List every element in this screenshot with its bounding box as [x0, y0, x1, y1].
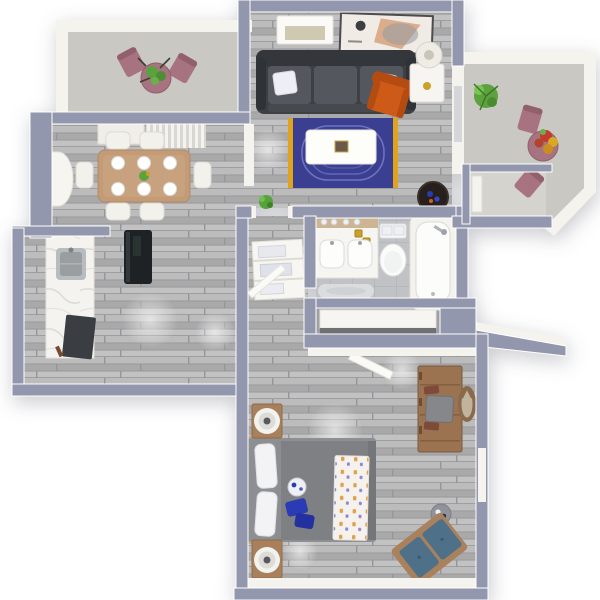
small-green-plant: [259, 195, 273, 209]
bed: [246, 436, 376, 544]
patio-left-parapet-west: [56, 20, 68, 114]
bedroom-south-wall-face: [240, 578, 478, 588]
bath-mat-oval: [326, 287, 366, 295]
dining-north-wall: [30, 112, 250, 124]
dining-chair: [106, 203, 130, 220]
blue-pillow: [294, 513, 315, 530]
pillow: [254, 491, 277, 536]
tank-towel: [394, 226, 404, 235]
desk-item: [424, 421, 440, 430]
round-mirror: [458, 386, 476, 422]
front-door: [472, 176, 482, 212]
towel-stack: [258, 245, 286, 257]
dining-table: [98, 150, 190, 202]
bedroom-north-wall: [304, 334, 476, 348]
living-east-window: [454, 86, 462, 142]
living-dining-opening-floor: [244, 186, 252, 206]
west-spine-wall: [236, 206, 248, 592]
entry-west-wall: [462, 164, 470, 224]
hallway: [248, 239, 305, 300]
closet-east-block: [440, 308, 476, 336]
breakfast-tray: [288, 478, 306, 496]
nightstand-south: [252, 540, 282, 578]
dining-chair: [140, 203, 164, 220]
bathroom-south-wall: [304, 298, 476, 308]
patio-right-parapet-top: [452, 52, 596, 64]
living-east-wall-upper: [452, 0, 464, 66]
living-south-wall-right: [292, 206, 466, 218]
nightstand-north: [252, 404, 282, 438]
kitchen-west-wall: [12, 228, 24, 396]
coffee-table: [306, 130, 376, 164]
patio-right-parapet-east: [584, 52, 596, 192]
door-jamb: [252, 206, 256, 218]
tub-drain: [431, 292, 435, 296]
bathtub: [410, 214, 456, 310]
closet-shelf: [320, 310, 436, 328]
living-north-wall: [238, 0, 464, 12]
dresser-desk: [418, 366, 462, 452]
refrigerator: [124, 230, 152, 284]
patio-left-parapet-top: [56, 20, 252, 32]
floor-plan-render: [0, 0, 600, 600]
floor-plan-stage: [0, 0, 600, 600]
hall-bath-divider: [304, 216, 316, 288]
throw-pillow-left: [273, 71, 298, 96]
desk-chair: [425, 395, 453, 422]
closet: [320, 310, 436, 336]
kitchen-south-wall: [12, 384, 237, 396]
lamp-finial: [424, 50, 434, 60]
double-vanity: [316, 216, 378, 278]
bedroom-south-wall: [234, 588, 488, 600]
bedroom-north-wall-face: [308, 348, 476, 356]
media-console-panel: [285, 26, 325, 40]
living-west-wall: [238, 0, 250, 124]
dining-chair: [106, 132, 130, 149]
dining-chair: [76, 162, 93, 188]
dining-living-divider: [244, 124, 254, 186]
kitchen-north-wall: [12, 226, 110, 236]
tank-towel: [382, 226, 392, 235]
kitchen-sink: [56, 248, 86, 281]
gold-decor: [423, 82, 431, 90]
entry-north-wall: [462, 164, 552, 172]
dark-appliance: [62, 315, 96, 360]
dining-west-wall: [30, 112, 52, 238]
toilet: [380, 224, 406, 276]
dining-chair: [194, 162, 211, 188]
desk-item: [424, 385, 440, 395]
patterned-throw: [333, 456, 369, 541]
bedroom-east-window-sill: [478, 448, 486, 502]
dining-chair: [140, 132, 164, 149]
gold-jar: [355, 230, 362, 237]
door-jamb: [288, 206, 292, 218]
living-south-wall-left: [236, 206, 252, 218]
pillow: [254, 443, 277, 488]
table-photo: [335, 141, 348, 152]
